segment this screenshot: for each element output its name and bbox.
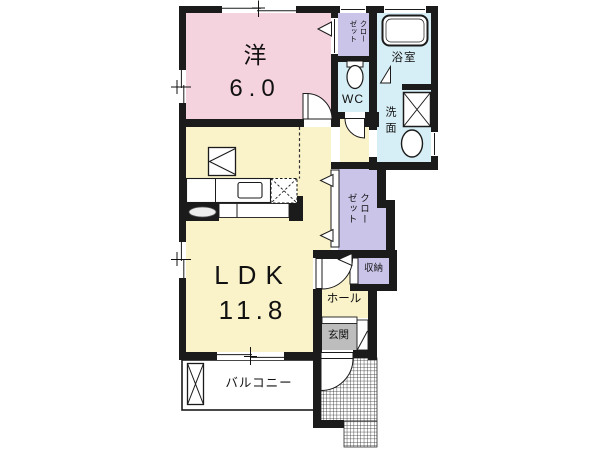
toilet-bowl-icon — [347, 66, 363, 89]
entrance-step — [322, 317, 357, 324]
bathtub-icon — [383, 16, 428, 46]
hall-label: ホール — [320, 293, 368, 306]
washer-space-icon — [404, 93, 431, 127]
kitchen-sink-icon — [189, 207, 216, 217]
washbasin-icon — [402, 130, 423, 157]
western-room-size: 6.0 — [195, 76, 315, 102]
balcony-label: バルコニー — [209, 377, 309, 391]
stove-icon — [238, 183, 262, 199]
floor-plan-canvas: 洋 6.0 LDK 11.8 クローゼット WC 浴室 洗面 クローゼット 収納… — [0, 0, 600, 450]
balcony-unit-icon — [188, 364, 204, 405]
counter-shelf — [219, 204, 289, 218]
closet-top-label: クローゼット — [341, 20, 368, 46]
bath-label: 浴室 — [377, 52, 431, 65]
entrance-door-leaf — [321, 353, 353, 359]
ldk-label: LDK — [185, 261, 321, 290]
pantry-space-icon — [271, 179, 297, 204]
entrance-side-step — [357, 320, 368, 350]
refrigerator-space-icon — [209, 148, 236, 176]
entrance-label: 玄関 — [319, 330, 358, 342]
wc-label: WC — [337, 93, 369, 106]
closet-mid-label: クローゼット — [341, 193, 369, 229]
western-room-label: 洋 — [195, 43, 315, 68]
washroom-label: 洗面 — [379, 106, 397, 150]
storage-label: 収納 — [357, 264, 390, 274]
ldk-size: 11.8 — [185, 296, 321, 325]
